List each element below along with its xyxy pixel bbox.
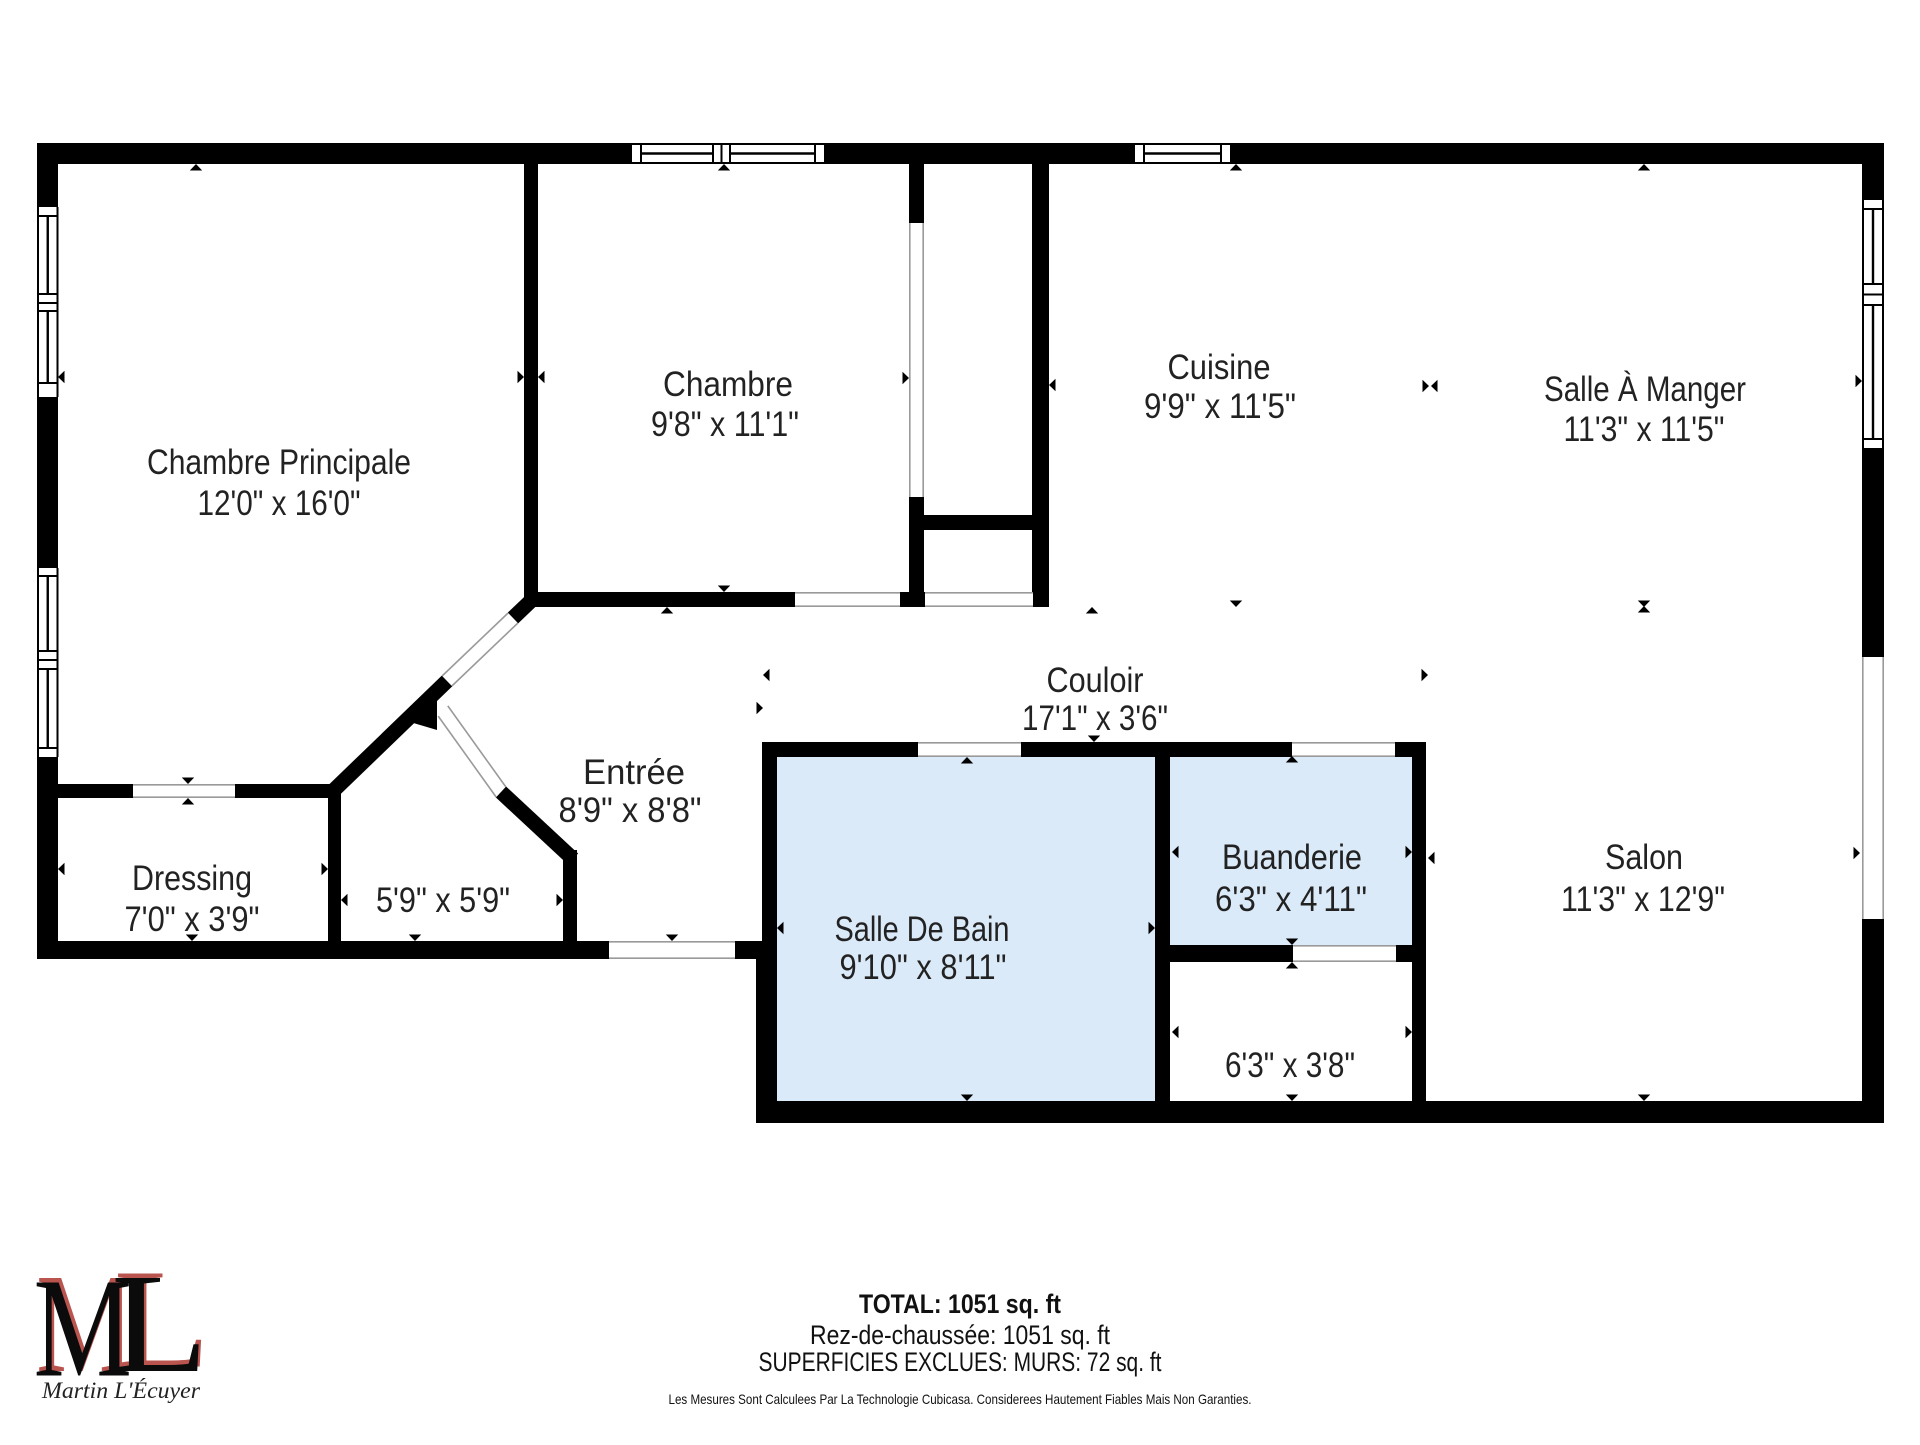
- svg-text:Salon: Salon: [1605, 838, 1683, 877]
- svg-text:Chambre: Chambre: [663, 365, 793, 404]
- svg-text:11'3" x 12'9": 11'3" x 12'9": [1561, 880, 1725, 919]
- svg-text:9'10" x 8'11": 9'10" x 8'11": [840, 948, 1007, 987]
- svg-text:Rez-de-chaussée: 1051 sq. ft: Rez-de-chaussée: 1051 sq. ft: [810, 1320, 1111, 1350]
- svg-text:12'0" x 16'0": 12'0" x 16'0": [198, 484, 361, 523]
- svg-text:Entrée: Entrée: [583, 753, 685, 792]
- svg-text:TOTAL: 1051 sq. ft: TOTAL: 1051 sq. ft: [859, 1289, 1061, 1319]
- svg-text:Dressing: Dressing: [132, 859, 252, 898]
- svg-text:Cuisine: Cuisine: [1168, 348, 1271, 387]
- svg-text:Salle De Bain: Salle De Bain: [835, 910, 1010, 949]
- svg-text:9'9" x 11'5": 9'9" x 11'5": [1144, 387, 1296, 426]
- svg-text:6'3" x 4'11": 6'3" x 4'11": [1215, 880, 1367, 919]
- svg-text:Salle À Manger: Salle À Manger: [1544, 370, 1746, 409]
- svg-text:Chambre Principale: Chambre Principale: [147, 443, 411, 482]
- svg-text:Martin L'Écuyer: Martin L'Écuyer: [41, 1378, 201, 1403]
- svg-text:8'9" x 8'8": 8'9" x 8'8": [559, 791, 702, 830]
- svg-text:Les Mesures Sont Calculees Par: Les Mesures Sont Calculees Par La Techno…: [669, 1391, 1252, 1407]
- svg-text:5'9" x 5'9": 5'9" x 5'9": [376, 881, 510, 920]
- svg-text:7'0" x 3'9": 7'0" x 3'9": [125, 900, 260, 939]
- svg-text:SUPERFICIES EXCLUES: MURS: 72: SUPERFICIES EXCLUES: MURS: 72 sq. ft: [759, 1347, 1163, 1377]
- svg-text:11'3" x 11'5": 11'3" x 11'5": [1564, 410, 1725, 449]
- svg-text:9'8" x 11'1": 9'8" x 11'1": [651, 405, 799, 444]
- svg-text:17'1" x 3'6": 17'1" x 3'6": [1022, 699, 1168, 738]
- svg-text:6'3" x 3'8": 6'3" x 3'8": [1225, 1046, 1355, 1085]
- svg-text:Buanderie: Buanderie: [1222, 838, 1362, 877]
- svg-text:Couloir: Couloir: [1047, 661, 1144, 700]
